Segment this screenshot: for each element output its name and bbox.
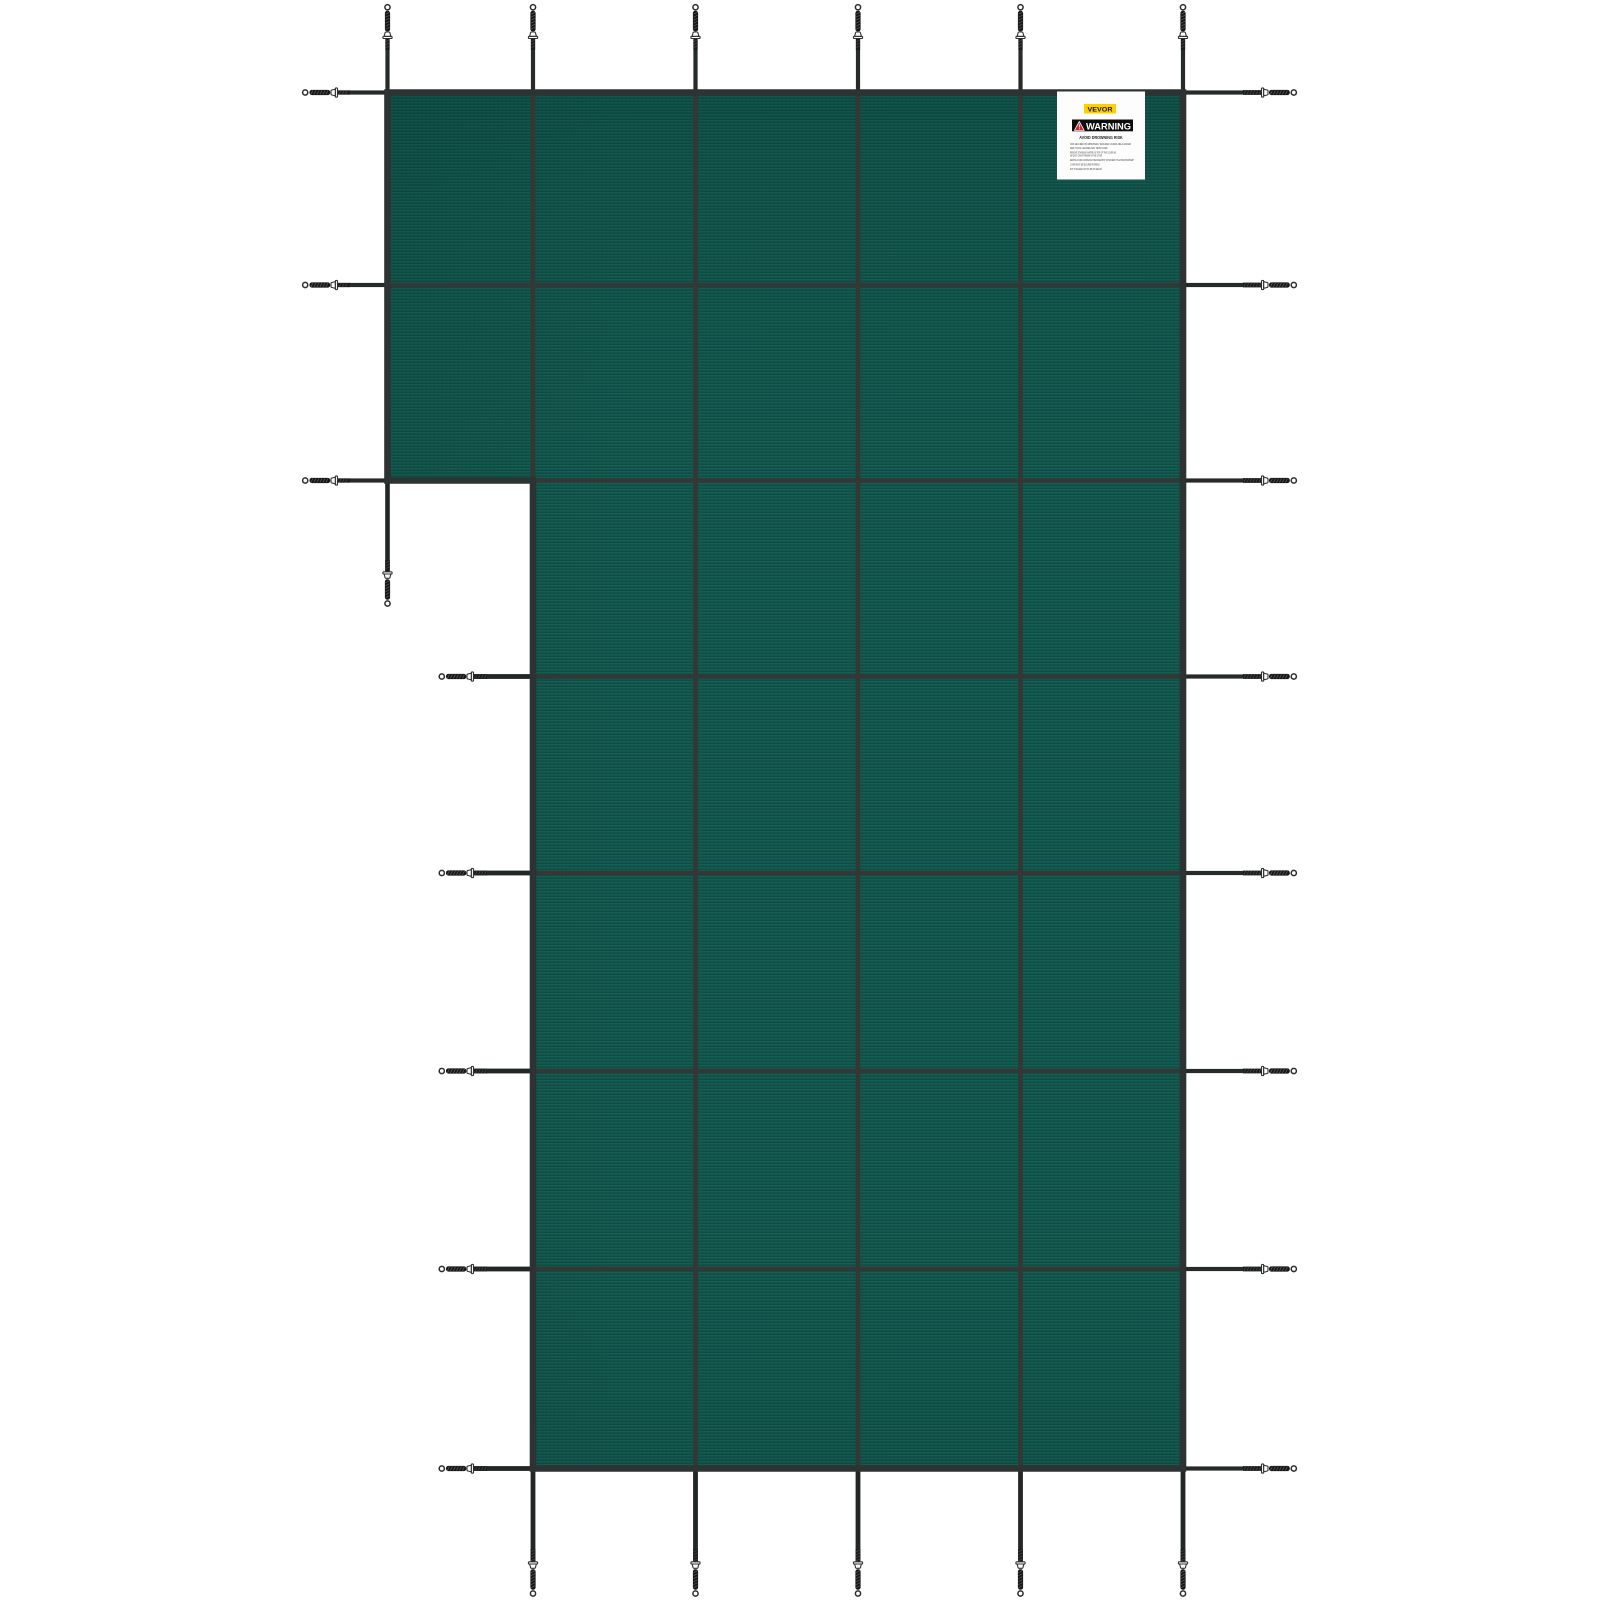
svg-text:VEVOR: VEVOR — [1088, 106, 1113, 113]
svg-text:AVOID DROWNING RISK: AVOID DROWNING RISK — [1079, 135, 1123, 140]
svg-text:AN ADULT CANNOT REMAIN ON THE: AN ADULT CANNOT REMAIN ON THE COVER — [1070, 154, 1102, 158]
svg-text:WARNING: WARNING — [1086, 121, 1131, 131]
svg-text:NOT TO EXCEED LIMIT OF 485 LBS: NOT TO EXCEED LIMIT OF 485 LBS WEIGHT — [1070, 167, 1102, 171]
svg-text:REMOVE COVER COMPLETELY BEFORE: REMOVE COVER COMPLETELY BEFORE ENTRY OF … — [1070, 158, 1134, 162]
svg-text:COVER MUST BE SECURED PROPERLY: COVER MUST BE SECURED PROPERLY — [1070, 162, 1100, 166]
svg-text:NON-SECURED OR IMPROPERLY SECU: NON-SECURED OR IMPROPERLY SECURED COVERS… — [1070, 142, 1131, 146]
svg-text:KEEP YOUNG CHILDREN AWAY FROM: KEEP YOUNG CHILDREN AWAY FROM COVER — [1070, 146, 1107, 150]
